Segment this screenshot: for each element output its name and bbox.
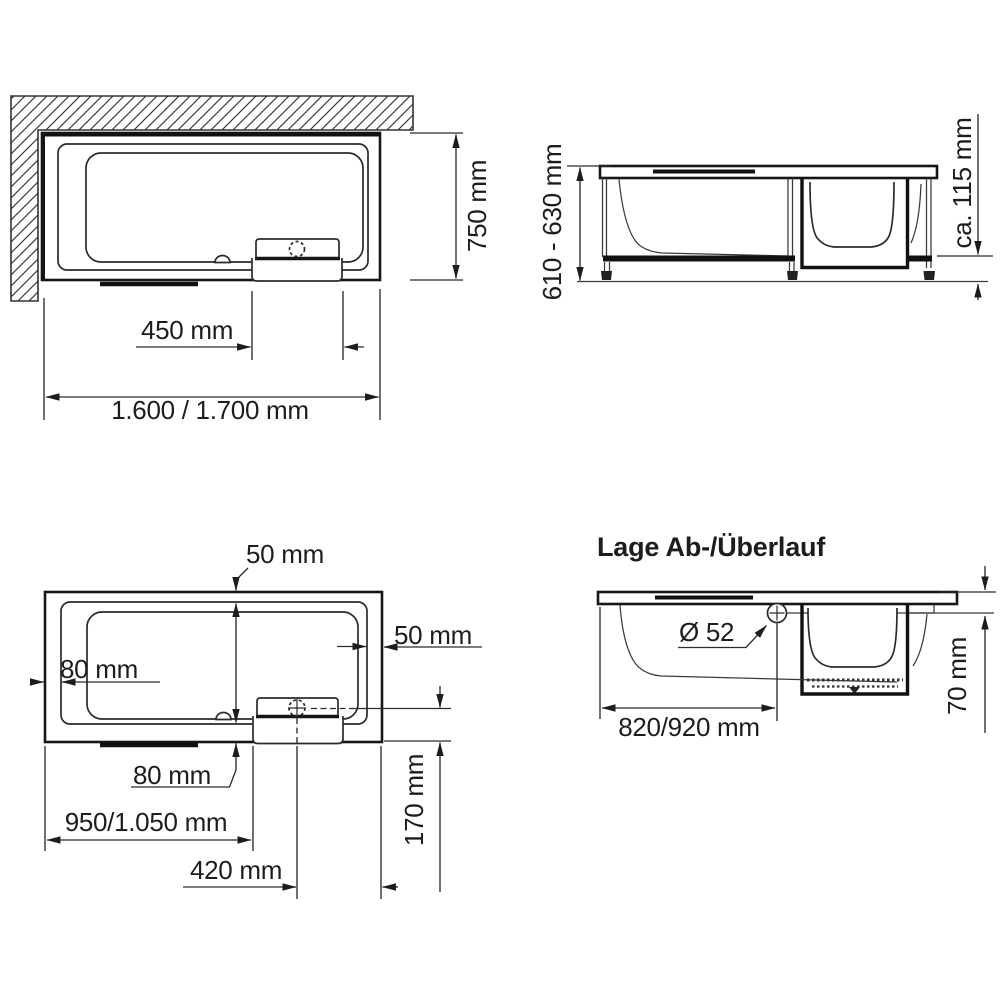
page: 750 mm 450 mm 1.600 / 1.700 mm: [0, 0, 1000, 1000]
overflow-marker: [215, 256, 230, 263]
footwell-basin: [808, 608, 897, 667]
foot-right: [924, 271, 936, 280]
dim-label-820-920: 820/920 mm: [618, 712, 760, 742]
rim-profile: [598, 592, 957, 604]
dim-label-ca115: ca. 115 mm: [947, 118, 977, 249]
dim-label-610-630: 610 - 630 mm: [537, 144, 567, 301]
dim-label-420: 420 mm: [190, 855, 282, 885]
dim-label-70: 70 mm: [942, 637, 972, 715]
foot-middle: [787, 271, 798, 280]
dim-label-750: 750 mm: [462, 160, 492, 252]
seat-extension: [252, 258, 342, 281]
dim-label-diameter-52: Ø 52: [679, 617, 734, 647]
overflow-marker: [216, 713, 231, 720]
foot-left: [601, 271, 612, 280]
footwell-basin: [810, 182, 894, 247]
bathtub-dimension-drawing: 750 mm 450 mm 1.600 / 1.700 mm: [0, 0, 1000, 1000]
dim-label-80-bottom: 80 mm: [133, 760, 211, 790]
rim-profile: [600, 166, 937, 178]
dim-label-80-left: 80 mm: [60, 654, 138, 684]
dim-label-50-right: 50 mm: [394, 620, 472, 650]
seat-extension: [253, 716, 343, 744]
dim-label-50-top: 50 mm: [246, 539, 324, 569]
dim-label-1600-1700: 1.600 / 1.700 mm: [111, 395, 309, 425]
dim-label-170: 170 mm: [399, 754, 429, 846]
dim-label-950-1050: 950/1.050 mm: [65, 807, 228, 837]
dim-label-450: 450 mm: [141, 315, 233, 345]
view-title: Lage Ab-/Überlauf: [597, 532, 826, 562]
